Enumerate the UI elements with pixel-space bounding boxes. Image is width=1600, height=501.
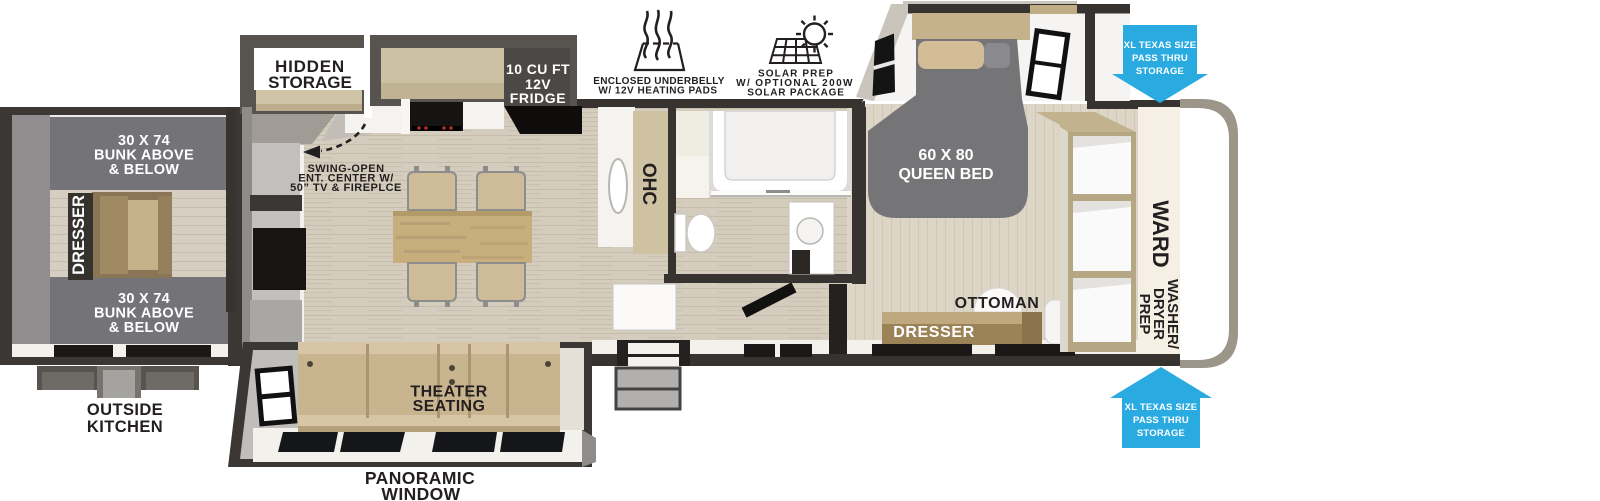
svg-text:XL TEXAS SIZE: XL TEXAS SIZE: [1125, 402, 1198, 413]
svg-text:STORAGE: STORAGE: [1137, 428, 1185, 439]
svg-text:SEATING: SEATING: [413, 398, 486, 415]
svg-text:OTTOMAN: OTTOMAN: [955, 295, 1040, 312]
svg-text:XL TEXAS SIZE: XL TEXAS SIZE: [1124, 40, 1197, 51]
svg-text:& BELOW: & BELOW: [109, 162, 180, 178]
svg-text:WINDOW: WINDOW: [381, 484, 460, 501]
svg-text:STORAGE: STORAGE: [268, 73, 352, 92]
svg-text:50” TV & FIREPLCE: 50” TV & FIREPLCE: [290, 182, 402, 194]
svg-text:W/ 12V HEATING PADS: W/ 12V HEATING PADS: [598, 86, 717, 97]
svg-text:SOLAR PACKAGE: SOLAR PACKAGE: [747, 88, 844, 99]
svg-text:PASS THRU: PASS THRU: [1133, 415, 1189, 426]
svg-text:OUTSIDE: OUTSIDE: [87, 401, 163, 419]
svg-text:10 CU FT: 10 CU FT: [506, 61, 570, 77]
svg-text:STORAGE: STORAGE: [1136, 66, 1184, 77]
svg-text:KITCHEN: KITCHEN: [87, 418, 163, 436]
svg-text:PASS THRU: PASS THRU: [1132, 53, 1188, 64]
svg-text:OHC: OHC: [638, 163, 659, 206]
svg-text:QUEEN BED: QUEEN BED: [898, 166, 993, 183]
svg-text:DRESSER: DRESSER: [893, 324, 975, 341]
svg-text:60 X 80: 60 X 80: [918, 147, 973, 164]
svg-text:& BELOW: & BELOW: [109, 320, 180, 336]
svg-text:FRIDGE: FRIDGE: [510, 90, 567, 106]
svg-text:WARD: WARD: [1148, 200, 1173, 267]
svg-text:PREP: PREP: [1136, 294, 1153, 335]
svg-text:DRESSER: DRESSER: [70, 195, 88, 275]
